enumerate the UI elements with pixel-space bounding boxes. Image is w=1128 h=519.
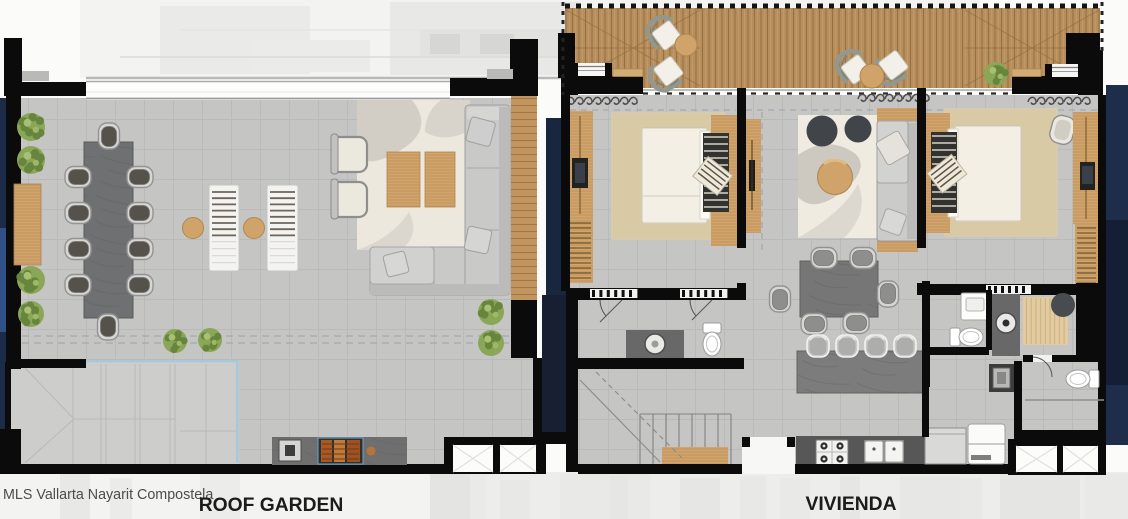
svg-text:ROOF GARDEN: ROOF GARDEN bbox=[199, 495, 344, 516]
svg-text:VIVIENDA: VIVIENDA bbox=[805, 494, 896, 515]
svg-text:MLS Vallarta Nayarit Compostel: MLS Vallarta Nayarit Compostela bbox=[3, 487, 213, 503]
